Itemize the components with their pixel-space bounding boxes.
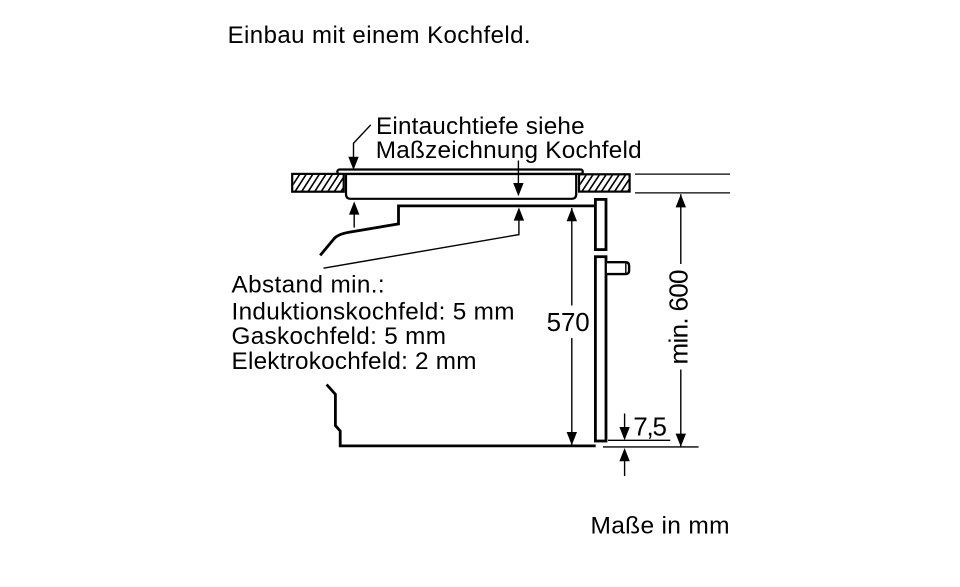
svg-text:Elektrokochfeld: 2 mm: Elektrokochfeld: 2 mm [232,348,477,375]
svg-text:Maßzeichnung Kochfeld: Maßzeichnung Kochfeld [376,137,642,164]
svg-text:Einbau mit einem Kochfeld.: Einbau mit einem Kochfeld. [228,22,531,49]
svg-text:Gaskochfeld: 5 mm: Gaskochfeld: 5 mm [232,323,447,350]
svg-text:Abstand min.:: Abstand min.: [232,272,385,299]
svg-text:Maße in mm: Maße in mm [591,512,730,539]
svg-text:570: 570 [547,309,590,337]
svg-text:Induktionskochfeld: 5 mm: Induktionskochfeld: 5 mm [232,299,515,326]
svg-text:7,5: 7,5 [633,412,667,442]
svg-text:min. 600: min. 600 [663,270,693,365]
